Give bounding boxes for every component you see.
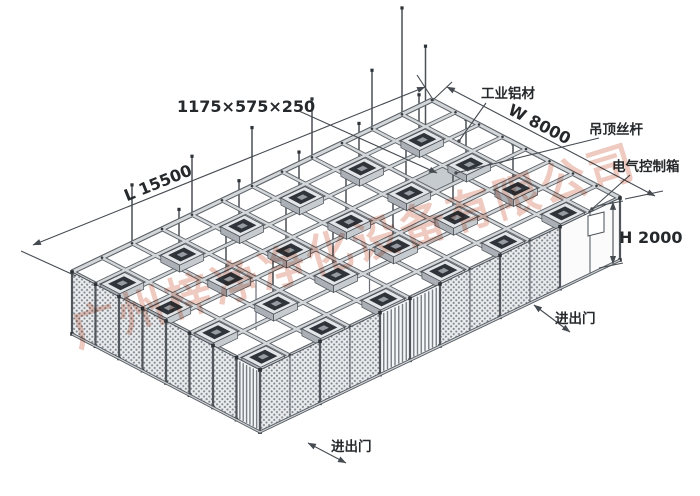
aluminum-leader-dot (457, 139, 460, 142)
width-extension-line (625, 191, 663, 199)
width-extension-line (434, 82, 452, 99)
rod-leader-dot (454, 171, 457, 174)
electrical-control-box (588, 212, 604, 236)
length-label: L 15500 (121, 161, 194, 205)
ceiling-rod-label: 吊顶丝杆 (589, 121, 643, 138)
length-extension-line (21, 251, 76, 276)
booth-structure (70, 6, 622, 433)
ffu-size-label: 1175×575×250 (177, 97, 315, 116)
aluminum-leader (459, 103, 486, 141)
cleanroom-technical-drawing: 1175×575×250 L 15500 W 8000 H 2000 工业铝材 … (0, 0, 700, 496)
control-box-leader-dot (590, 207, 593, 210)
door-label-right: 进出门 (555, 310, 596, 327)
door-label-bottom: 进出门 (331, 438, 372, 455)
aluminum-frame-label: 工业铝材 (481, 85, 535, 102)
electrical-box-label: 电气控制箱 (612, 158, 680, 175)
width-dimension-line (447, 87, 655, 196)
height-label: H 2000 (619, 228, 683, 247)
diagram-canvas: 1175×575×250 L 15500 W 8000 H 2000 工业铝材 … (0, 0, 700, 496)
